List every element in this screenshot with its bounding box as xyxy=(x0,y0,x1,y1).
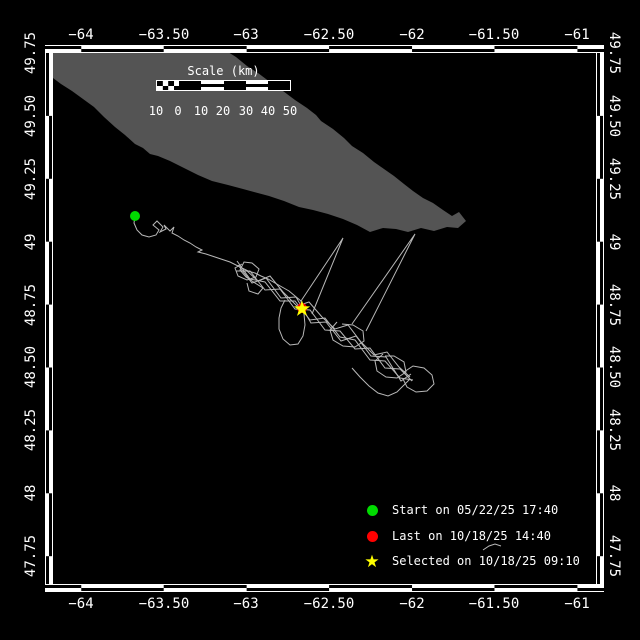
lon-tick-label: −62 xyxy=(399,28,424,42)
lon-tick-label: −64 xyxy=(68,597,93,611)
legend-item: ★Selected on 10/18/25 09:10 xyxy=(362,553,580,569)
lat-tick-label: 48.25 xyxy=(24,409,38,451)
scale-bar-title: Scale (km) xyxy=(156,64,291,78)
lat-tick-label: 48 xyxy=(24,485,38,502)
lon-tick-label: −63 xyxy=(233,597,258,611)
map-frame-right xyxy=(596,53,604,584)
scale-bar-segment xyxy=(246,81,268,90)
map-frame-left xyxy=(45,53,53,584)
lat-tick-label: 47.75 xyxy=(607,535,621,577)
scale-bar-km-label: 10 xyxy=(194,105,208,117)
drift-track-segment xyxy=(352,234,415,331)
legend-label: Last on 10/18/25 14:40 xyxy=(392,528,551,544)
lat-tick-label: 49 xyxy=(24,234,38,251)
scale-bar-km-label: 20 xyxy=(216,105,230,117)
legend-item: Start on 05/22/25 17:40 xyxy=(362,502,558,518)
drift-track-segment xyxy=(483,544,501,550)
lat-tick-label: 49.75 xyxy=(607,32,621,74)
star-icon: ★ xyxy=(364,552,379,572)
scale-bar-km-label: 30 xyxy=(239,105,253,117)
lat-tick-label: 48.75 xyxy=(607,284,621,326)
map-frame-top xyxy=(45,45,604,53)
lat-tick-label: 49.75 xyxy=(24,32,38,74)
scale-bar-km-label: 40 xyxy=(261,105,275,117)
scale-bar-segment xyxy=(179,81,201,90)
lon-tick-label: −62 xyxy=(399,597,424,611)
legend-label: Start on 05/22/25 17:40 xyxy=(392,502,558,518)
lat-tick-label: 48.50 xyxy=(607,346,621,388)
lat-tick-label: 48.25 xyxy=(607,409,621,451)
drift-track-segment xyxy=(134,216,302,308)
scale-bar-segment xyxy=(224,81,246,90)
scale-bar-segment xyxy=(201,81,223,90)
drift-track-segment xyxy=(352,368,410,396)
lon-tick-label: −62.50 xyxy=(304,597,355,611)
lat-tick-label: 49.50 xyxy=(607,95,621,137)
lat-tick-label: 48.50 xyxy=(24,346,38,388)
lon-tick-label: −61 xyxy=(564,28,589,42)
lat-tick-label: 48 xyxy=(607,485,621,502)
drift-track-segment xyxy=(375,354,406,378)
dot-icon xyxy=(367,505,378,516)
scale-bar-segment xyxy=(268,81,290,90)
lon-tick-label: −64 xyxy=(68,28,93,42)
map-canvas[interactable] xyxy=(0,0,640,640)
dot-icon xyxy=(367,531,378,542)
lon-tick-label: −61 xyxy=(564,597,589,611)
lon-tick-label: −62.50 xyxy=(304,28,355,42)
lon-tick-label: −63.50 xyxy=(139,28,190,42)
green-dot-icon xyxy=(362,501,382,520)
lon-tick-label: −63 xyxy=(233,28,258,42)
start-position-marker xyxy=(130,211,140,221)
lat-tick-label: 49.25 xyxy=(607,158,621,200)
lon-tick-label: −63.50 xyxy=(139,597,190,611)
lat-tick-label: 47.75 xyxy=(24,535,38,577)
lat-tick-label: 49.25 xyxy=(24,158,38,200)
legend-item: Last on 10/18/25 14:40 xyxy=(362,528,551,544)
scale-bar-km-label: 50 xyxy=(283,105,297,117)
lat-tick-label: 49.50 xyxy=(24,95,38,137)
scale-bar-subdivided-segment xyxy=(157,81,179,90)
red-dot-icon xyxy=(362,527,382,546)
scale-bar-km-label: 0 xyxy=(174,105,181,117)
lat-tick-label: 49 xyxy=(607,234,621,251)
island-landmass xyxy=(53,52,466,232)
tracking-map-window: −64−63.50−63−62.50−62−61.50−61 −64−63.50… xyxy=(0,0,640,640)
lon-tick-label: −61.50 xyxy=(469,597,520,611)
lon-tick-label: −61.50 xyxy=(469,28,520,42)
lat-tick-label: 48.75 xyxy=(24,284,38,326)
scale-bar xyxy=(156,80,291,91)
yellow-star-icon: ★ xyxy=(362,552,382,571)
scale-bar-km-label: 10 xyxy=(149,105,163,117)
map-frame-bottom xyxy=(45,584,604,592)
legend-label: Selected on 10/18/25 09:10 xyxy=(392,553,580,569)
